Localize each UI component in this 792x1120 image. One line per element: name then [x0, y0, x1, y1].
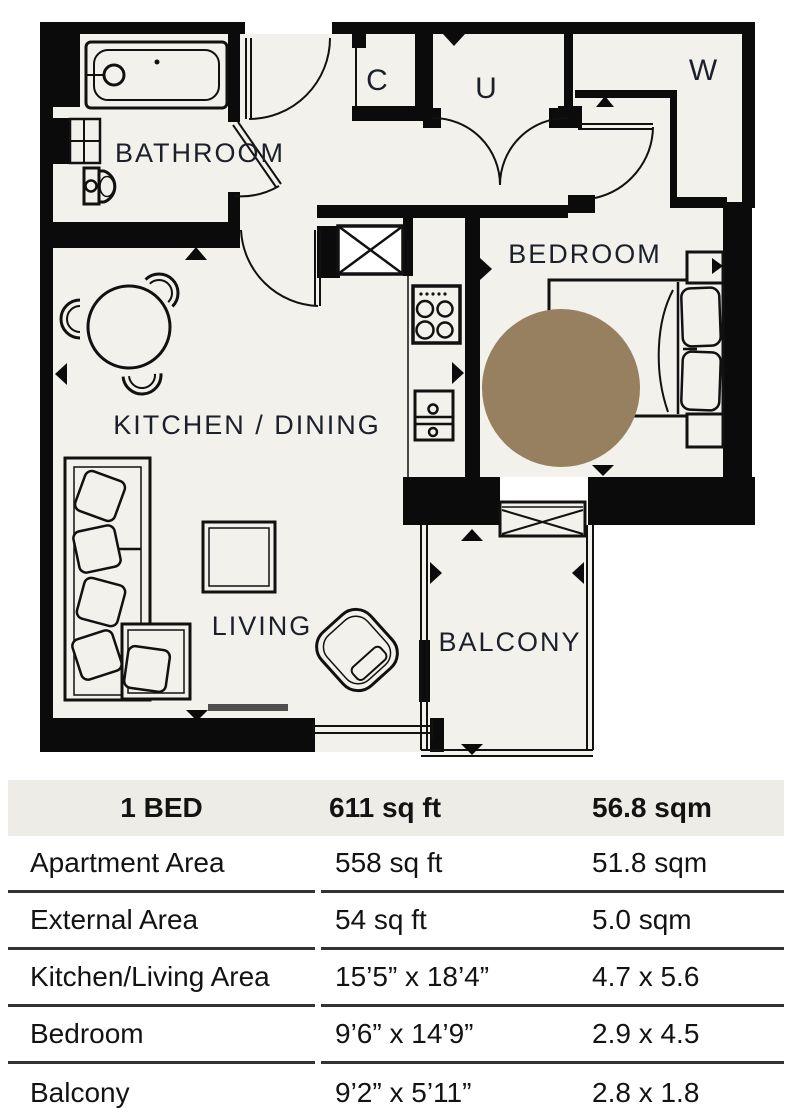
- spec-row-label: Balcony: [8, 1064, 315, 1120]
- dining-table: [88, 286, 170, 368]
- utility-wall-left: [427, 34, 433, 112]
- bedroom-label: BEDROOM: [508, 239, 662, 269]
- table-row: Bedroom 9’6” x 14’9” 2.9 x 4.5: [8, 1007, 784, 1064]
- spec-row-imperial: 9’2” x 5’11”: [321, 1077, 592, 1109]
- wardrobe-wall-bottom: [670, 197, 727, 208]
- header-total-imperial: 611 sq ft: [315, 792, 592, 824]
- wardrobe-w-label: W: [689, 54, 719, 87]
- bath-pier: [52, 34, 80, 107]
- spec-row-imperial: 9’6” x 14’9”: [321, 1018, 592, 1050]
- table-row: Balcony 9’2” x 5’11” 2.8 x 1.8: [8, 1064, 784, 1120]
- entrance-pier: [568, 195, 595, 213]
- wall-right-upper: [742, 22, 755, 208]
- wall-bottom-living: [53, 718, 315, 752]
- spec-row-metric: 4.7 x 5.6: [592, 961, 784, 993]
- wall-right-mid: [723, 202, 752, 477]
- location-marker: [482, 309, 640, 467]
- table-row: Apartment Area 558 sq ft 51.8 sqm: [8, 836, 784, 893]
- spec-row-imperial: 54 sq ft: [321, 904, 592, 936]
- utility-u-label: U: [475, 72, 499, 105]
- spec-row-label: External Area: [8, 893, 315, 950]
- living-label: LIVING: [212, 611, 313, 641]
- toilet: [84, 168, 115, 204]
- table-row: External Area 54 sq ft 5.0 sqm: [8, 893, 784, 950]
- bathroom-sink: [52, 118, 100, 164]
- spec-table: 1 BED 611 sq ft 56.8 sqm Apartment Area …: [0, 780, 792, 1120]
- spec-row-metric: 51.8 sqm: [592, 847, 784, 879]
- closet-c-pier: [352, 34, 366, 48]
- balcony-wall-left-chunk: [403, 477, 500, 525]
- spec-row-label: Kitchen/Living Area: [8, 950, 315, 1007]
- bed-pillow: [681, 287, 721, 346]
- bathroom-label: BATHROOM: [115, 138, 285, 168]
- spec-row-metric: 2.8 x 1.8: [592, 1077, 784, 1109]
- spec-row-label: Bedroom: [8, 1007, 315, 1064]
- radiator-bar: [208, 704, 288, 711]
- kitchen-bedroom-wall: [465, 218, 480, 478]
- service-shaft: [338, 226, 403, 274]
- vestibule-wall: [575, 90, 677, 98]
- kitchen-sink-unit: [415, 391, 453, 440]
- balcony-wall-right-chunk: [588, 477, 755, 525]
- floor-plan: BATHROOM C U W BEDROOM KITCHEN / DINING …: [0, 0, 792, 768]
- coffee-table: [203, 522, 275, 592]
- bathroom-wall-bottom: [52, 222, 240, 248]
- bathtub: [86, 42, 227, 108]
- spec-table-header: 1 BED 611 sq ft 56.8 sqm: [8, 780, 784, 836]
- hob: [413, 286, 460, 343]
- hall-wall-bottom: [317, 205, 568, 218]
- wardrobe-wall-left: [670, 98, 677, 198]
- bathroom-wall-right-a: [228, 34, 240, 122]
- kitchen-dining-label: KITCHEN / DINING: [113, 410, 381, 440]
- utility-wall-right: [564, 34, 573, 112]
- wall-left: [40, 22, 53, 752]
- spec-row-label: Apartment Area: [8, 836, 315, 893]
- wall-top-right: [332, 22, 755, 34]
- table-row: Kitchen/Living Area 15’5” x 18’4” 4.7 x …: [8, 950, 784, 1007]
- bed-pillow: [681, 351, 721, 410]
- spec-row-imperial: 558 sq ft: [321, 847, 592, 879]
- nightstand: [687, 414, 723, 447]
- wall-top-left: [40, 22, 245, 34]
- spec-row-metric: 5.0 sqm: [592, 904, 784, 936]
- closet-c-label: C: [366, 64, 390, 97]
- spec-row-imperial: 15’5” x 18’4”: [321, 961, 592, 993]
- balcony-sliding-door: [500, 502, 585, 536]
- balcony-label: BALCONY: [438, 627, 581, 657]
- spec-row-metric: 2.9 x 4.5: [592, 1018, 784, 1050]
- header-unit-type: 1 BED: [8, 792, 315, 824]
- header-total-metric: 56.8 sqm: [592, 792, 784, 824]
- floorplan-sheet: BATHROOM C U W BEDROOM KITCHEN / DINING …: [0, 0, 792, 1120]
